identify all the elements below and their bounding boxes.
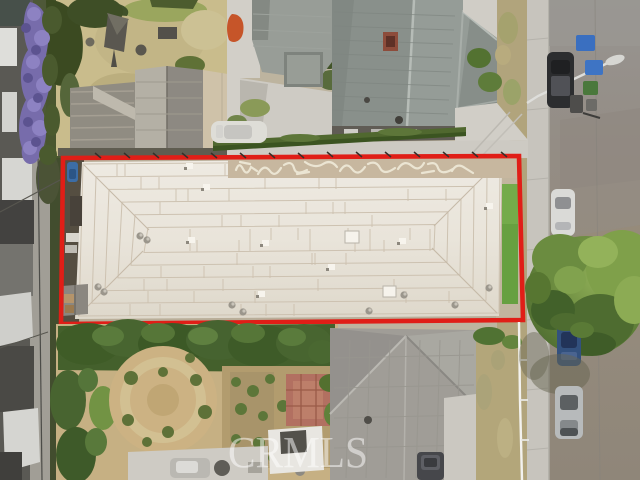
svg-text:CRMLS: CRMLS — [228, 428, 368, 477]
